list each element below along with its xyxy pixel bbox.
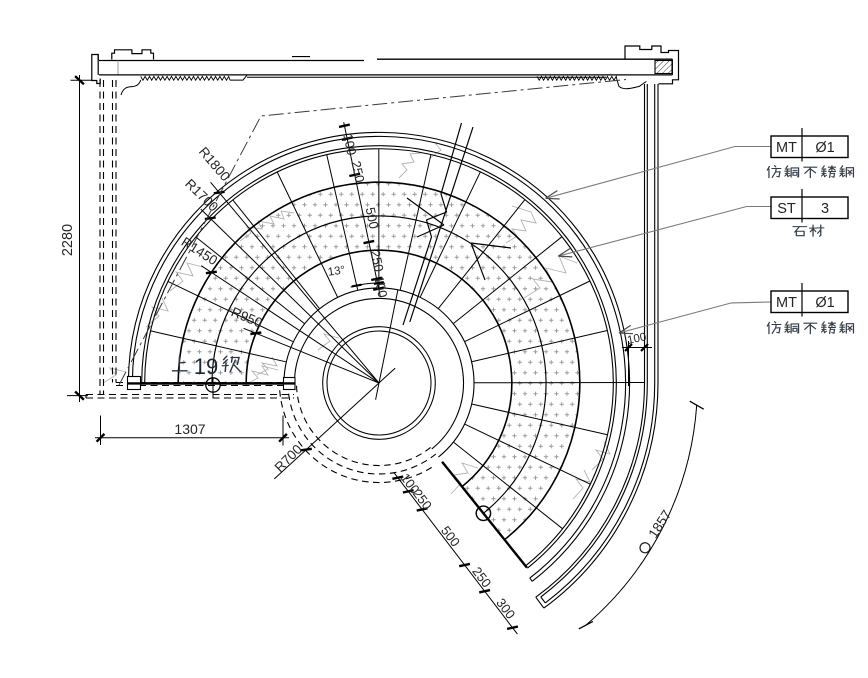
svg-text:2280: 2280 bbox=[60, 224, 76, 256]
svg-text:MT: MT bbox=[776, 140, 797, 156]
svg-text:ST: ST bbox=[777, 201, 796, 217]
svg-text:3: 3 bbox=[821, 201, 829, 217]
svg-text:19: 19 bbox=[194, 354, 218, 379]
svg-text:1307: 1307 bbox=[174, 421, 205, 437]
svg-text:13°: 13° bbox=[327, 264, 346, 278]
svg-text:Ø1: Ø1 bbox=[815, 295, 834, 311]
svg-text:Ø1: Ø1 bbox=[815, 140, 834, 156]
svg-text:MT: MT bbox=[776, 295, 797, 311]
